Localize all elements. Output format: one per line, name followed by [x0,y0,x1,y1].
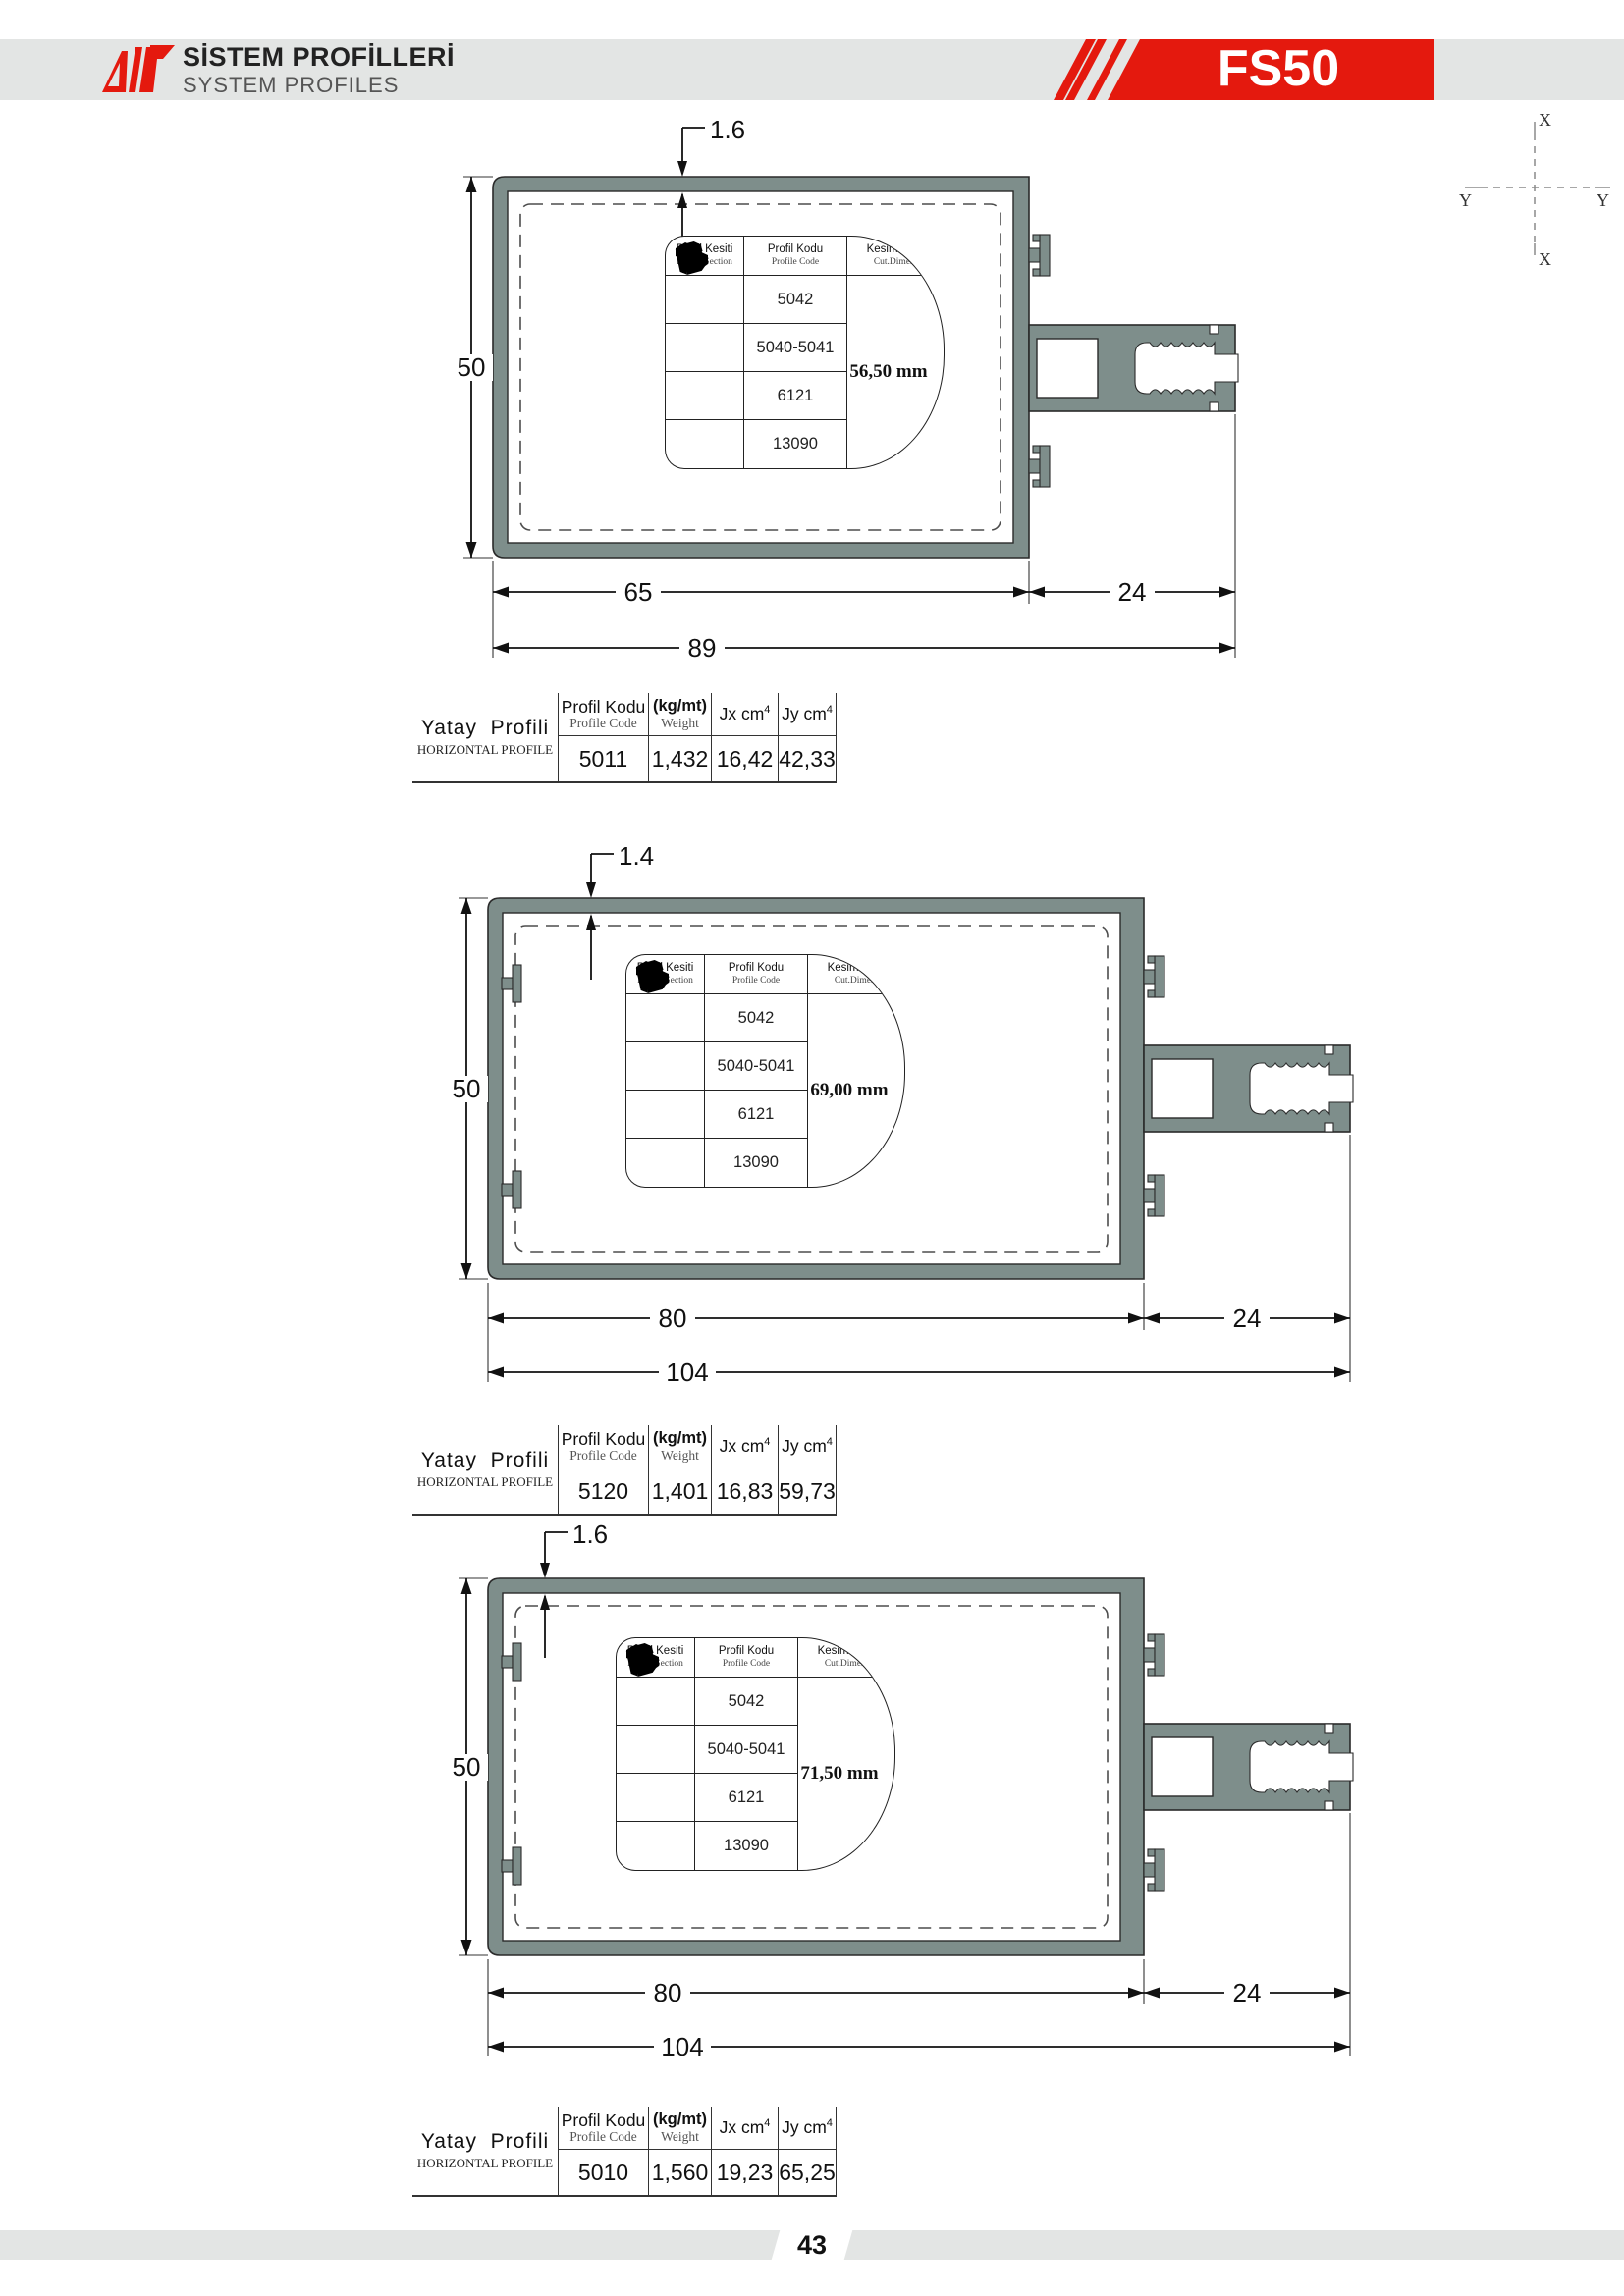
accessory-code: 5042 [695,1678,798,1726]
accessory-icon-6121 [666,372,744,420]
dim-height: 50 [453,1752,481,1782]
accessory-code: 5042 [744,276,847,324]
value-jx: 19,23 [711,2150,778,2195]
accessory-code: 6121 [744,372,847,420]
value-jx: 16,42 [711,736,778,781]
page-number: 43 [778,2230,846,2260]
axis-y-right-label: Y [1597,190,1609,210]
wall-tab [1029,235,1050,276]
accessory-table: Profil KesitiProfile Section Profil Kodu… [665,236,945,469]
wall-tab [1029,446,1050,487]
hdr-code-tr: Profil Kodu [562,698,646,716]
value-weight: 1,560 [648,2150,711,2195]
data-table-5120: Yatay ProfiliHORIZONTAL PROFILE Profil K… [412,1425,837,1516]
dim-extension: 24 [1233,1978,1262,2007]
dim-extension: 24 [1233,1304,1262,1333]
accessory-code: 5040-5041 [744,324,847,372]
value-weight: 1,432 [648,736,711,781]
hdr-jy: Jy cm4 [782,1437,833,1455]
accessory-icon-5042 [626,994,705,1042]
accessory-code: 5042 [705,994,808,1042]
page-title: SİSTEM PROFİLLERİ [183,43,455,71]
accessory-table: Profil KesitiProfile Section Profil Kodu… [625,954,905,1188]
data-table-5010: Yatay ProfiliHORIZONTAL PROFILE Profil K… [412,2107,837,2197]
axis-x-top-label: X [1539,110,1551,130]
profile-drawing-5010: 50 1.6 80 24 [373,1515,1375,2104]
profile-cross-section [488,898,1353,1279]
axis-y-left-label: Y [1459,190,1472,210]
header-titles: SİSTEM PROFİLLERİ SYSTEM PROFILES [183,43,455,96]
value-code: 5010 [558,2150,648,2195]
wall-tab [1144,1634,1164,1676]
data-table-5011: Yatay ProfiliHORIZONTAL PROFILE Profil K… [412,693,837,783]
accessory-icon-6121 [617,1774,695,1822]
accessory-code: 6121 [695,1774,798,1822]
row-title-tr: Yatay Profili [421,717,549,740]
dim-width: 80 [654,1978,682,2007]
accessory-code: 6121 [705,1091,808,1139]
hdr-jy: Jy cm4 [782,2118,833,2136]
profile-drawing-5011: 50 1.6 65 24 [373,108,1296,677]
dim-width: 65 [624,577,653,607]
dim-wall-thickness: 1.6 [572,1520,608,1549]
clamp-arm [1144,1724,1353,1810]
value-code: 5120 [558,1468,648,1514]
hdr-weight-tr: (kg/mt) [653,698,707,715]
accessory-icon-6121 [626,1091,705,1139]
dim-wall-thickness: 1.6 [710,115,745,144]
accessory-icon-13090 [666,420,744,468]
dim-total: 104 [661,2032,703,2061]
wall-tab [1144,1175,1164,1216]
accessory-icon-5042 [617,1678,695,1726]
accessory-icon-13090 [626,1139,705,1187]
value-weight: 1,401 [648,1468,711,1514]
series-badge: FS50 [1011,39,1434,100]
hdr-weight-en: Weight [661,717,699,730]
dim-wall-thickness: 1.4 [619,841,654,871]
accessory-icon-5042 [666,276,744,324]
value-jx: 16,83 [711,1468,778,1514]
dim-height: 50 [458,352,486,382]
accessory-table: Profil KesitiProfile Section Profil Kodu… [616,1637,895,1871]
value-jy: 65,25 [778,2150,837,2195]
col-code-tr: Profil Kodu [768,243,823,257]
accessory-icon-5040 [617,1726,695,1774]
col-code-en: Profile Code [772,257,819,268]
value-jy: 59,73 [778,1468,837,1514]
accessory-code: 5040-5041 [695,1726,798,1774]
catalog-page: SİSTEM PROFİLLERİ SYSTEM PROFILES FS50 X… [0,0,1624,2296]
dim-total: 104 [666,1358,708,1387]
profile-drawing-5120: 50 1.4 80 24 [373,834,1375,1423]
accessory-icon-5040 [626,1042,705,1091]
accessory-code: 13090 [695,1822,798,1870]
accessory-code: 13090 [744,420,847,468]
axis-x-bottom-label: X [1539,249,1551,269]
value-code: 5011 [558,736,648,781]
wall-tab [1144,956,1164,997]
series-code-label: FS50 [1218,40,1339,97]
accessory-icon-5040 [666,324,744,372]
hdr-jx: Jx cm4 [720,705,771,722]
clamp-arm [1029,325,1238,411]
accessory-code: 5040-5041 [705,1042,808,1091]
row-title-en: HORIZONTAL PROFILE [417,743,553,758]
dim-height: 50 [453,1074,481,1103]
value-jy: 42,33 [778,736,837,781]
accessory-code: 13090 [705,1139,808,1187]
wall-tab [1144,1849,1164,1891]
hdr-jx: Jx cm4 [720,1437,771,1455]
dim-total: 89 [688,633,717,663]
company-logo-icon [96,37,177,100]
axis-reference-icon: X X Y Y [1451,110,1624,269]
hdr-code-en: Profile Code [569,717,637,730]
hdr-jy: Jy cm4 [782,705,833,722]
clamp-arm [1144,1045,1353,1132]
dim-width: 80 [659,1304,687,1333]
hdr-jx: Jx cm4 [720,2118,771,2136]
accessory-icon-13090 [617,1822,695,1870]
dim-extension: 24 [1118,577,1147,607]
page-subtitle: SYSTEM PROFILES [183,74,455,96]
